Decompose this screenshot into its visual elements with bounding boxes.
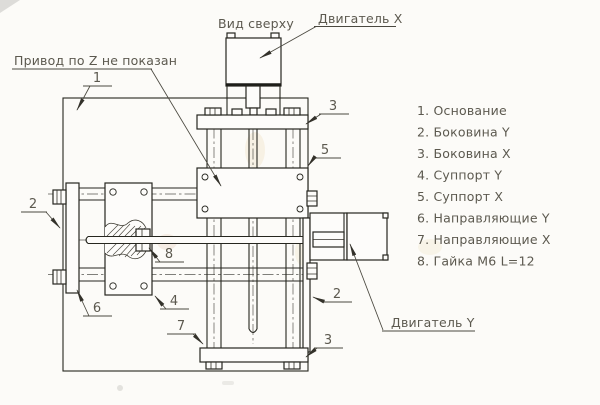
legend-item: 6. Направляющие Y — [417, 211, 550, 226]
legend-item: 7. Направляющие X — [417, 232, 551, 247]
callout-guides-x: 7 — [177, 319, 185, 334]
label-view-top: Вид сверху — [218, 16, 294, 31]
motor-y-assembly — [310, 213, 388, 260]
legend-item: 8. Гайка М6 L=12 — [417, 254, 535, 269]
motor-x-assembly — [226, 33, 281, 115]
legend-item: 2. Боковина Y — [417, 125, 510, 140]
callout-support-y: 4 — [170, 294, 178, 309]
callout-sidewall-x-bottom: 3 — [324, 333, 332, 348]
sidewall-x-bottom-plate — [200, 348, 308, 369]
sidewall-y-left-plate — [53, 183, 79, 293]
base-plate — [63, 98, 308, 371]
machine-drawing-svg: Вид сверху Двигатель X Привод по Z не по… — [0, 0, 600, 405]
legend-item: 3. Боковина X — [417, 146, 511, 161]
callout-sidewall-y-right: 2 — [333, 287, 341, 302]
lead-screw-y — [86, 237, 303, 244]
support-x-plate — [197, 168, 308, 218]
callout-base: 1 — [93, 71, 101, 86]
parts-legend: 1. Основание 2. Боковина Y 3. Боковина X… — [417, 103, 551, 269]
legend-item: 5. Суппорт X — [417, 189, 503, 204]
label-z-note: Привод по Z не показан — [14, 53, 177, 68]
label-motor-y: Двигатель Y — [391, 315, 475, 330]
legend-item: 1. Основание — [417, 103, 507, 118]
legend-item: 4. Суппорт Y — [417, 168, 502, 183]
scanned-drawing-page: Вид сверху Двигатель X Привод по Z не по… — [0, 0, 600, 405]
callout-support-x: 5 — [321, 143, 329, 158]
callout-sidewall-x-top: 3 — [329, 99, 337, 114]
callout-sidewall-y-left: 2 — [29, 197, 37, 212]
callout-guides-y: 6 — [93, 301, 101, 316]
label-motor-x: Двигатель X — [318, 11, 403, 26]
callout-nut: 8 — [165, 247, 173, 262]
